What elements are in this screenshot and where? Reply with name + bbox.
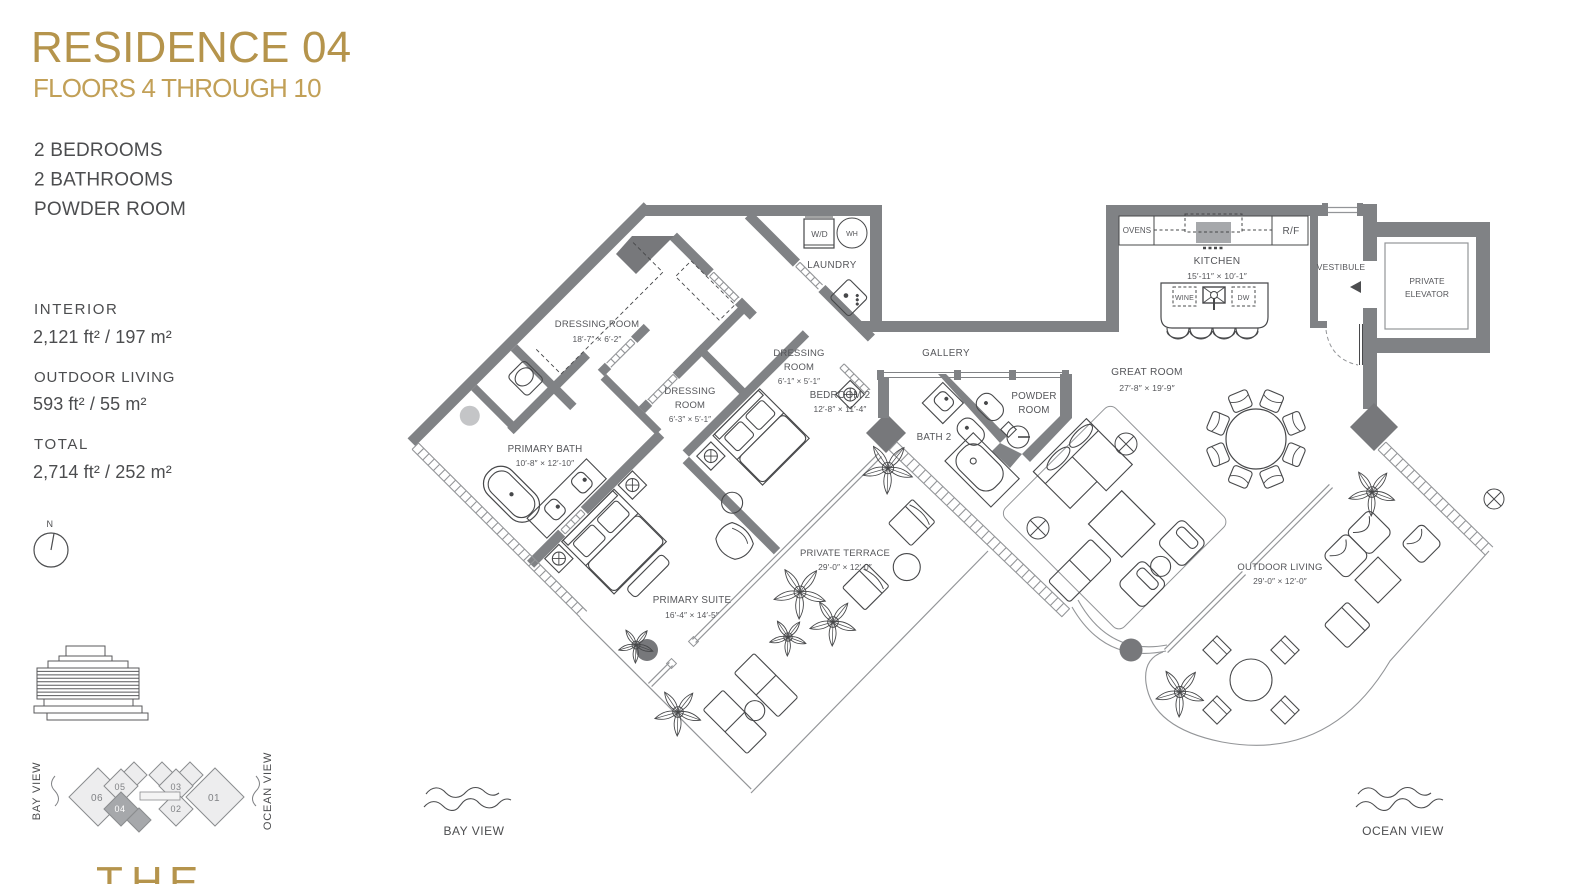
svg-text:PRIMARY SUITE: PRIMARY SUITE xyxy=(653,595,732,606)
svg-text:TOTAL: TOTAL xyxy=(34,436,89,453)
svg-text:KITCHEN: KITCHEN xyxy=(1194,256,1241,267)
svg-text:BATH 2: BATH 2 xyxy=(917,432,952,443)
svg-text:OVENS: OVENS xyxy=(1123,226,1152,235)
svg-text:16′-4″ × 14′-5″: 16′-4″ × 14′-5″ xyxy=(665,610,719,620)
svg-text:10′-8″ × 12′-10″: 10′-8″ × 12′-10″ xyxy=(516,458,574,468)
svg-text:6′-1″ × 5′-1″: 6′-1″ × 5′-1″ xyxy=(778,377,820,386)
svg-text:ELEVATOR: ELEVATOR xyxy=(1405,289,1449,299)
svg-text:27′-8″ × 19′-9″: 27′-8″ × 19′-9″ xyxy=(1119,383,1175,393)
svg-text:OCEAN VIEW: OCEAN VIEW xyxy=(1362,824,1444,838)
svg-text:W/D: W/D xyxy=(811,229,828,239)
svg-text:OUTDOOR LIVING: OUTDOOR LIVING xyxy=(34,369,175,386)
svg-text:05: 05 xyxy=(114,782,125,792)
svg-text:DRESSING: DRESSING xyxy=(664,386,715,397)
svg-text:RESIDENCE 04: RESIDENCE 04 xyxy=(31,23,351,72)
svg-text:POWDER: POWDER xyxy=(1011,391,1056,402)
svg-text:03: 03 xyxy=(170,782,181,792)
svg-text:PRIMARY BATH: PRIMARY BATH xyxy=(508,444,583,455)
svg-text:GREAT ROOM: GREAT ROOM xyxy=(1111,367,1183,378)
svg-text:PRIVATE: PRIVATE xyxy=(1409,276,1445,286)
svg-text:DW: DW xyxy=(1237,295,1249,302)
svg-text:VESTIBULE: VESTIBULE xyxy=(1317,262,1366,272)
svg-text:POWDER ROOM: POWDER ROOM xyxy=(34,199,186,220)
svg-text:ROOM: ROOM xyxy=(675,400,705,411)
svg-text:2 BEDROOMS: 2 BEDROOMS xyxy=(34,140,163,161)
svg-text:02: 02 xyxy=(170,804,181,814)
svg-text:H: H xyxy=(131,858,163,884)
svg-text:T: T xyxy=(96,858,123,884)
svg-text:29′-0″ × 12′-0″: 29′-0″ × 12′-0″ xyxy=(1253,576,1307,586)
svg-text:LAUNDRY: LAUNDRY xyxy=(807,260,857,271)
svg-text:DRESSING: DRESSING xyxy=(773,348,824,359)
svg-text:GALLERY: GALLERY xyxy=(922,348,970,359)
svg-text:PRIVATE TERRACE: PRIVATE TERRACE xyxy=(800,548,890,559)
svg-text:2,121 ft² / 197 m²: 2,121 ft² / 197 m² xyxy=(33,327,172,347)
svg-text:N: N xyxy=(47,519,54,529)
svg-text:04: 04 xyxy=(114,804,125,814)
svg-text:593 ft² / 55 m²: 593 ft² / 55 m² xyxy=(33,394,147,414)
svg-text:DRESSING ROOM: DRESSING ROOM xyxy=(555,319,639,330)
svg-text:15′-11″ × 10′-1″: 15′-11″ × 10′-1″ xyxy=(1187,271,1247,281)
svg-text:BAY VIEW: BAY VIEW xyxy=(31,762,43,821)
svg-text:FLOORS 4 THROUGH 10: FLOORS 4 THROUGH 10 xyxy=(33,73,321,103)
svg-text:18′-7″ × 6′-2″: 18′-7″ × 6′-2″ xyxy=(573,334,622,344)
svg-text:ROOM: ROOM xyxy=(784,362,814,373)
svg-text:BAY VIEW: BAY VIEW xyxy=(444,824,505,838)
svg-text:2,714 ft² / 252 m²: 2,714 ft² / 252 m² xyxy=(33,462,172,482)
svg-text:OUTDOOR LIVING: OUTDOOR LIVING xyxy=(1237,562,1322,573)
svg-text:WH: WH xyxy=(846,231,858,238)
svg-text:R/F: R/F xyxy=(1282,226,1299,237)
svg-text:01: 01 xyxy=(208,793,220,804)
svg-text:6′-3″ × 5′-1″: 6′-3″ × 5′-1″ xyxy=(669,415,711,424)
svg-text:E: E xyxy=(169,858,198,884)
svg-text:2 BATHROOMS: 2 BATHROOMS xyxy=(34,170,173,191)
svg-text:ROOM: ROOM xyxy=(1018,405,1049,416)
svg-text:INTERIOR: INTERIOR xyxy=(34,301,118,318)
svg-text:OCEAN VIEW: OCEAN VIEW xyxy=(262,752,274,830)
svg-text:06: 06 xyxy=(91,793,103,804)
svg-text:WINE: WINE xyxy=(1175,295,1194,302)
svg-text:12′-8″ × 11′-4″: 12′-8″ × 11′-4″ xyxy=(813,404,866,414)
